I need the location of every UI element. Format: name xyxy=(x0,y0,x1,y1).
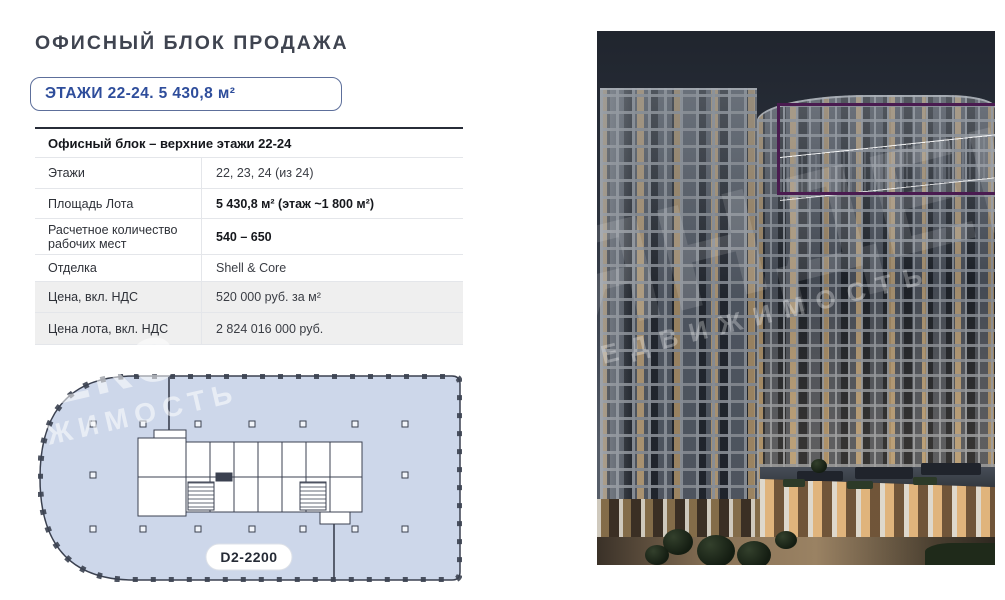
terrace-planter xyxy=(913,477,937,485)
building-photo: ЯНДЕКС НЕДВИЖИМОСТЬ xyxy=(597,31,995,565)
plan-label: D2-2200 xyxy=(220,549,277,565)
table-row: Цена, вкл. НДС 520 000 руб. за м² xyxy=(35,282,463,313)
row-label: Цена, вкл. НДС xyxy=(35,282,202,312)
row-value: 520 000 руб. за м² xyxy=(202,290,463,304)
row-value: Shell & Core xyxy=(202,261,463,275)
floor-plan: D2-2200 xyxy=(38,374,462,582)
tree xyxy=(697,535,735,565)
floor-plan-drawing: D2-2200 xyxy=(38,374,462,582)
row-label: Цена лота, вкл. НДС xyxy=(35,313,202,344)
table-row: Расчетное количество рабочих мест 540 – … xyxy=(35,219,463,255)
tree xyxy=(645,545,669,565)
row-label: Отделка xyxy=(35,255,202,281)
terrace-tree xyxy=(811,459,827,473)
row-value: 2 824 016 000 руб. xyxy=(202,322,463,336)
table-row: Отделка Shell & Core xyxy=(35,255,463,282)
table-row: Цена лота, вкл. НДС 2 824 016 000 руб. xyxy=(35,313,463,345)
pergola-canopy xyxy=(921,463,981,475)
spec-table: Офисный блок – верхние этажи 22-24 Этажи… xyxy=(35,127,463,345)
row-label: Этажи xyxy=(35,158,202,188)
floors-badge: ЭТАЖИ 22-24. 5 430,8 м² xyxy=(30,77,342,111)
sales-slide: ОФИСНЫЙ БЛОК ПРОДАЖА ЭТАЖИ 22-24. 5 430,… xyxy=(0,0,1005,600)
row-value: 540 – 650 xyxy=(202,230,463,244)
row-value: 5 430,8 м² (этаж ~1 800 м²) xyxy=(202,197,463,211)
tree xyxy=(775,531,797,549)
plan-label-pill: D2-2200 xyxy=(206,544,292,570)
tree xyxy=(737,541,771,565)
floors-badge-label: ЭТАЖИ 22-24. 5 430,8 м² xyxy=(45,85,235,103)
terrace-planter xyxy=(783,479,805,487)
table-row: Площадь Лота 5 430,8 м² (этаж ~1 800 м²) xyxy=(35,189,463,219)
row-label: Расчетное количество рабочих мест xyxy=(35,219,202,254)
row-value: 22, 23, 24 (из 24) xyxy=(202,166,463,180)
plan-core xyxy=(138,430,362,524)
table-header: Офисный блок – верхние этажи 22-24 xyxy=(35,129,463,158)
pergola-canopy xyxy=(855,467,913,479)
lawn xyxy=(925,543,995,565)
page-title: ОФИСНЫЙ БЛОК ПРОДАЖА xyxy=(35,32,349,55)
highlight-outline xyxy=(777,103,995,195)
row-label: Площадь Лота xyxy=(35,189,202,218)
terrace-planter xyxy=(847,481,873,489)
table-row: Этажи 22, 23, 24 (из 24) xyxy=(35,158,463,189)
